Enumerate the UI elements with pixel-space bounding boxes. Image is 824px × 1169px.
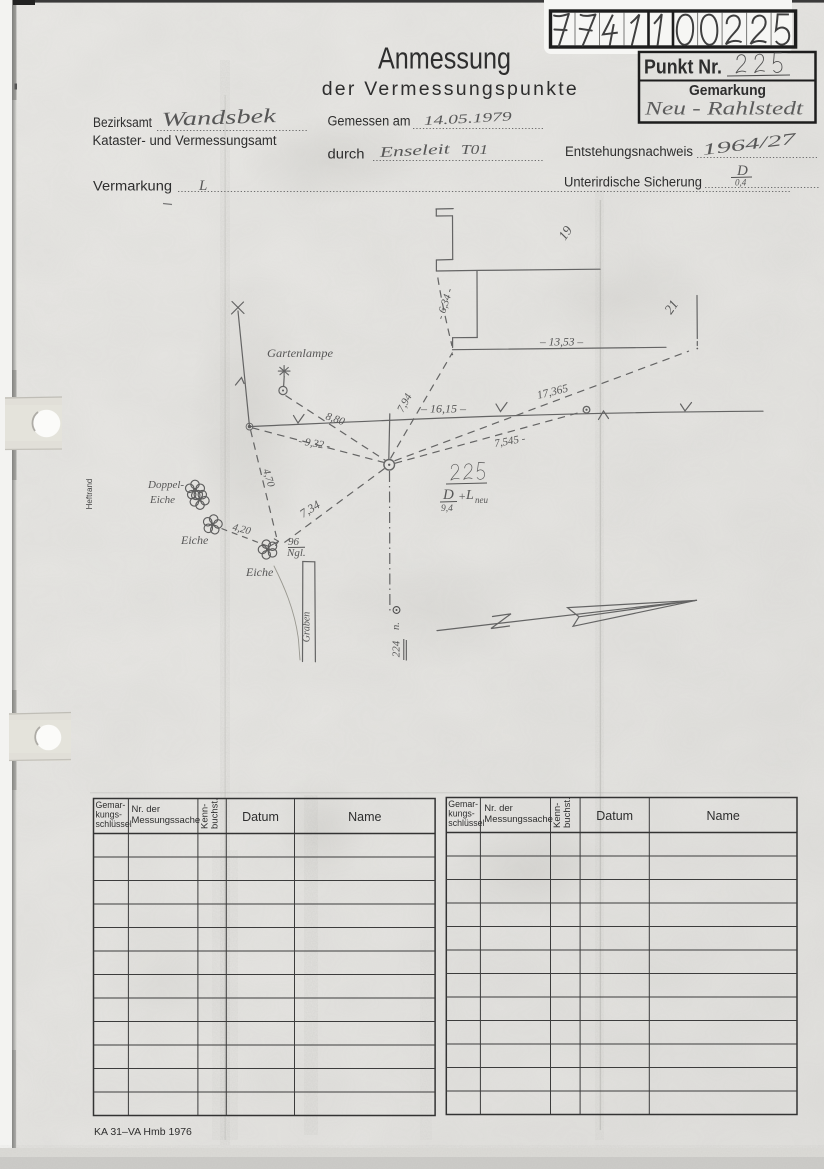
svg-text:Name: Name <box>707 809 740 823</box>
svg-text:Bezirksamt: Bezirksamt <box>93 115 152 130</box>
svg-text:Neu - Rahlstedt: Neu - Rahlstedt <box>644 99 804 120</box>
svg-text:KA 31–VA Hmb 1976: KA 31–VA Hmb 1976 <box>94 1126 192 1138</box>
svg-text:der Vermessungspunkte: der Vermessungspunkte <box>322 78 577 100</box>
svg-text:buchst.: buchst. <box>562 797 573 828</box>
svg-text:L: L <box>198 178 207 194</box>
svg-text:kungs-: kungs- <box>96 810 122 820</box>
svg-text:Graben: Graben <box>302 612 313 643</box>
svg-text:9,4: 9,4 <box>441 504 453 514</box>
svg-text:Kataster- und Vermessungsamt: Kataster- und Vermessungsamt <box>93 133 277 148</box>
svg-text:schlüssel: schlüssel <box>96 819 132 829</box>
svg-text:Gemar-: Gemar- <box>448 799 478 809</box>
svg-text:neu: neu <box>475 495 488 505</box>
svg-text:T01: T01 <box>461 143 488 158</box>
svg-text:Unterirdische Sicherung: Unterirdische Sicherung <box>564 175 702 190</box>
svg-text:schlüssel: schlüssel <box>448 818 484 828</box>
svg-text:n.: n. <box>391 622 402 630</box>
svg-text:+: + <box>458 489 466 503</box>
svg-text:L: L <box>465 488 474 503</box>
svg-text:Messungssache: Messungssache <box>132 815 201 826</box>
svg-text:Gartenlampe: Gartenlampe <box>267 346 334 360</box>
svg-text:– 16,15 –: – 16,15 – <box>420 402 467 416</box>
svg-text:0,4: 0,4 <box>735 178 747 188</box>
svg-text:Name: Name <box>348 810 381 824</box>
svg-text:Datum: Datum <box>242 810 279 824</box>
svg-text:Nr. der: Nr. der <box>484 803 513 814</box>
svg-text:Eiche: Eiche <box>180 533 209 547</box>
svg-text:durch: durch <box>328 147 365 162</box>
svg-text:Gemarkung: Gemarkung <box>689 82 766 99</box>
svg-text:D: D <box>442 487 454 503</box>
svg-text:Eiche: Eiche <box>149 494 175 506</box>
svg-text:Ngl.: Ngl. <box>286 547 306 559</box>
svg-text:Eiche: Eiche <box>245 565 274 579</box>
svg-text:Doppel-: Doppel- <box>147 479 184 491</box>
svg-text:– 13,53 –: – 13,53 – <box>539 337 583 349</box>
svg-text:Datum: Datum <box>596 809 633 823</box>
svg-text:Gemessen am: Gemessen am <box>328 114 411 129</box>
svg-text:kungs-: kungs- <box>448 809 474 819</box>
svg-text:Entstehungsnachweis: Entstehungsnachweis <box>565 144 693 159</box>
svg-text:Nr. der: Nr. der <box>132 804 161 815</box>
svg-text:Anmessung: Anmessung <box>378 42 511 76</box>
svg-text:Heftrand: Heftrand <box>85 479 94 510</box>
svg-text:buchst.: buchst. <box>210 798 221 829</box>
svg-text:Messungssache: Messungssache <box>484 814 553 825</box>
svg-text:Gemar-: Gemar- <box>96 800 126 810</box>
svg-text:Wandsbek: Wandsbek <box>161 105 277 131</box>
svg-text:224: 224 <box>391 640 403 657</box>
svg-text:Vermarkung: Vermarkung <box>93 179 172 194</box>
svg-text:Punkt Nr.: Punkt Nr. <box>644 57 722 79</box>
